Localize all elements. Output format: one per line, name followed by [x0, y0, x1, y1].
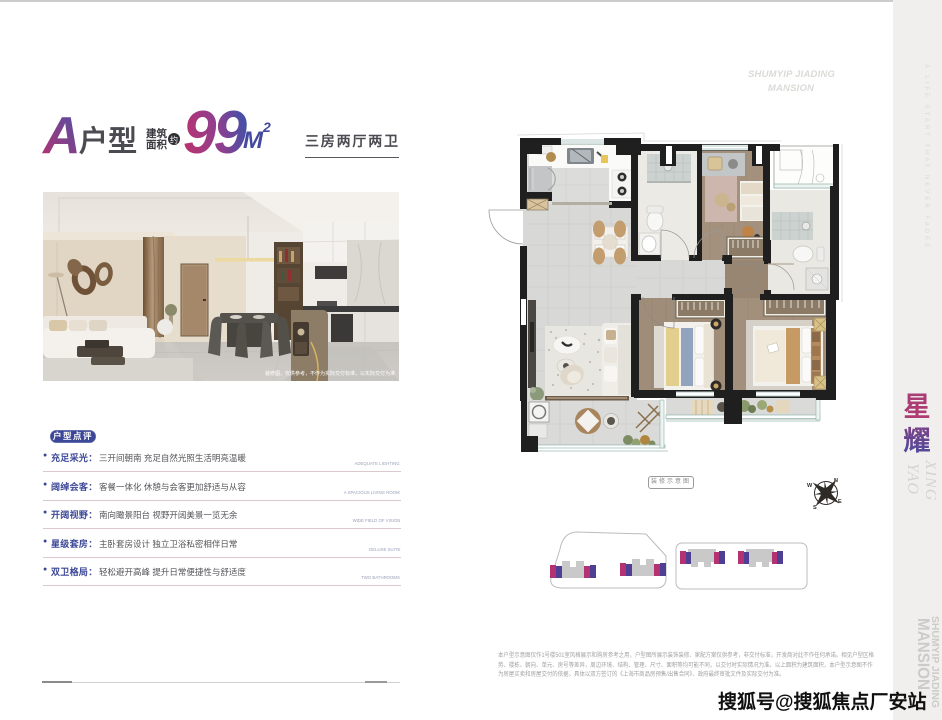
svg-text:W: W: [807, 483, 813, 489]
svg-text:E: E: [838, 499, 842, 505]
svg-text:约: 约: [170, 135, 178, 145]
svg-text:M: M: [243, 127, 264, 154]
svg-text:面积: 面积: [146, 138, 167, 151]
svg-text:耀: 耀: [904, 426, 931, 456]
svg-text:YAO: YAO: [904, 463, 921, 495]
svg-text:99: 99: [183, 99, 248, 166]
svg-text:XING: XING: [922, 459, 936, 501]
svg-text:户型: 户型: [79, 124, 137, 158]
svg-text:A: A: [42, 107, 81, 165]
svg-text:N: N: [834, 478, 838, 484]
svg-text:2: 2: [262, 119, 271, 135]
svg-text:S: S: [813, 505, 817, 511]
svg-text:星: 星: [904, 392, 931, 422]
svg-text:装修图，仅供参考，不作为实际交付标准，以实际交付为准: 装修图，仅供参考，不作为实际交付标准，以实际交付为准: [265, 370, 395, 377]
